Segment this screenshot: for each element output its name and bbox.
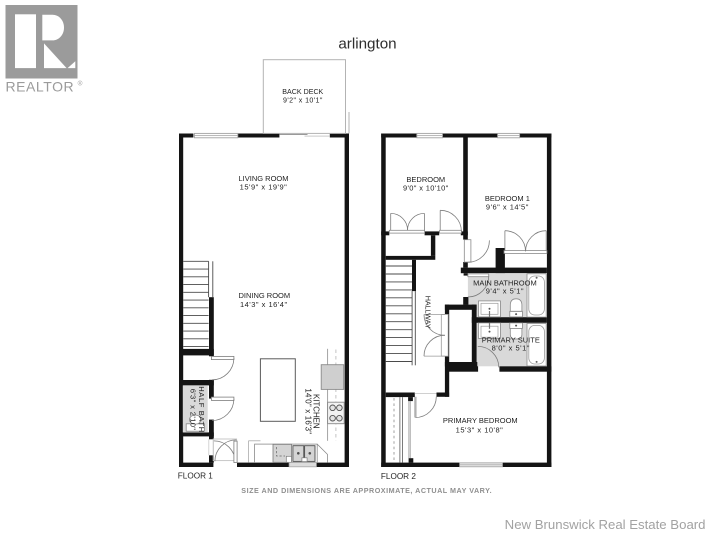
- svg-text:14'0" x 16'3": 14'0" x 16'3": [303, 388, 312, 434]
- svg-text:PRIMARY BEDROOM: PRIMARY BEDROOM: [443, 416, 518, 425]
- svg-text:FLOOR 2: FLOOR 2: [381, 472, 416, 481]
- svg-text:9'2" x 10'1": 9'2" x 10'1": [283, 96, 323, 104]
- svg-text:9'4" x 5'1": 9'4" x 5'1": [486, 286, 524, 295]
- svg-text:SIZE AND DIMENSIONS ARE APPROX: SIZE AND DIMENSIONS ARE APPROXIMATE, ACT…: [241, 486, 492, 495]
- svg-text:15'9" x 19'9": 15'9" x 19'9": [240, 182, 288, 191]
- svg-text:REALTOR: REALTOR: [6, 79, 75, 95]
- svg-text:HALLWAY: HALLWAY: [423, 296, 432, 329]
- svg-text:HALF BATH: HALF BATH: [197, 386, 206, 433]
- svg-text:BEDROOM: BEDROOM: [406, 175, 445, 184]
- svg-text:BACK DECK: BACK DECK: [282, 88, 323, 96]
- svg-text:9'0" x 10'10": 9'0" x 10'10": [403, 184, 449, 193]
- svg-text:®: ®: [78, 80, 83, 88]
- svg-text:9'6" x 14'5": 9'6" x 14'5": [486, 203, 529, 212]
- svg-text:New Brunswick Real Estate Boar: New Brunswick Real Estate Board: [505, 517, 706, 532]
- svg-text:14'3" x 16'4": 14'3" x 16'4": [240, 300, 288, 309]
- svg-text:arlington: arlington: [338, 36, 396, 53]
- svg-text:8'0" x 5'1": 8'0" x 5'1": [492, 344, 530, 353]
- svg-text:FLOOR 1: FLOOR 1: [178, 472, 213, 481]
- svg-text:15'3" x 10'8": 15'3" x 10'8": [456, 425, 504, 434]
- svg-text:6'3" x 2'10": 6'3" x 2'10": [188, 389, 197, 431]
